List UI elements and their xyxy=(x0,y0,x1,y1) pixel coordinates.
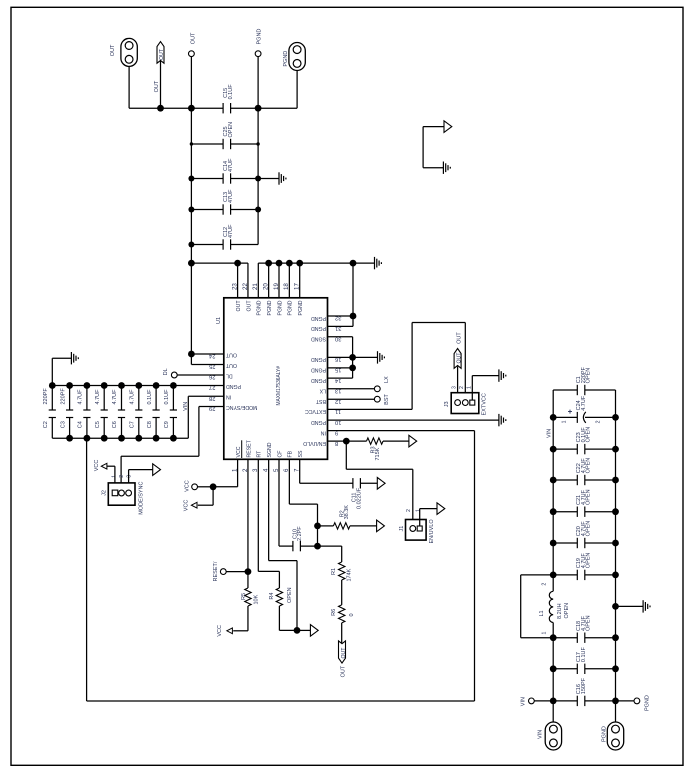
svg-text:VCC: VCC xyxy=(236,446,242,457)
svg-text:IN: IN xyxy=(226,394,231,400)
svg-text:OUT: OUT xyxy=(154,80,160,92)
svg-text:MAXM17536ALY#: MAXM17536ALY# xyxy=(276,366,282,406)
svg-text:0.1UF: 0.1UF xyxy=(147,389,153,405)
svg-text:PGND: PGND xyxy=(288,300,294,315)
svg-text:OUT: OUT xyxy=(456,352,462,364)
svg-text:R4: R4 xyxy=(269,593,275,600)
svg-text:OPEN: OPEN xyxy=(586,553,592,569)
svg-text:2: 2 xyxy=(459,386,465,389)
svg-text:OPEN: OPEN xyxy=(586,458,592,474)
svg-text:C9: C9 xyxy=(164,421,170,428)
svg-text:EXTVCC: EXTVCC xyxy=(305,408,326,414)
svg-text:174K: 174K xyxy=(347,568,353,581)
svg-text:OUT: OUT xyxy=(246,300,252,312)
svg-text:VCC: VCC xyxy=(183,500,189,512)
svg-text:J2: J2 xyxy=(101,490,107,496)
svg-text:IN: IN xyxy=(321,429,326,435)
svg-text:C5: C5 xyxy=(95,421,101,428)
svg-text:C4: C4 xyxy=(78,421,84,428)
svg-text:CF: CF xyxy=(277,451,283,458)
svg-text:47UF: 47UF xyxy=(228,224,234,238)
svg-text:21: 21 xyxy=(252,283,259,290)
svg-text:2: 2 xyxy=(119,475,125,478)
svg-text:4.7UF: 4.7UF xyxy=(78,389,84,405)
svg-text:OUT: OUT xyxy=(225,351,237,357)
svg-text:OPEN: OPEN xyxy=(228,122,234,138)
svg-text:LX: LX xyxy=(384,376,390,383)
svg-text:PGND: PGND xyxy=(645,695,651,711)
svg-text:OUT: OUT xyxy=(236,300,242,312)
svg-text:3: 3 xyxy=(452,386,458,389)
svg-text:PGND: PGND xyxy=(311,377,326,383)
svg-text:OUT: OUT xyxy=(341,647,347,659)
svg-text:BST: BST xyxy=(384,393,390,404)
svg-text:R5: R5 xyxy=(241,593,247,600)
svg-text:22: 22 xyxy=(242,283,249,290)
svg-text:OUT: OUT xyxy=(341,665,347,677)
svg-text:2: 2 xyxy=(541,583,547,586)
svg-text:C8: C8 xyxy=(147,421,153,428)
svg-text:OUT: OUT xyxy=(159,48,165,60)
svg-text:J3: J3 xyxy=(444,401,450,407)
svg-text:OUT: OUT xyxy=(225,362,237,368)
svg-text:PGND: PGND xyxy=(311,315,326,321)
svg-text:OPEN: OPEN xyxy=(586,368,592,384)
svg-text:DL: DL xyxy=(226,372,233,378)
svg-text:OPEN: OPEN xyxy=(564,603,570,619)
svg-text:OUT: OUT xyxy=(110,44,116,56)
svg-text:4.7UF: 4.7UF xyxy=(112,389,118,405)
svg-text:PGND: PGND xyxy=(602,726,608,742)
svg-text:1: 1 xyxy=(415,509,421,512)
svg-text:PGND: PGND xyxy=(298,300,304,315)
svg-text:R6: R6 xyxy=(331,609,337,616)
svg-text:PGND: PGND xyxy=(257,29,263,45)
svg-text:VIN: VIN xyxy=(538,730,544,739)
svg-text:FB: FB xyxy=(288,450,294,457)
svg-text:4.7UF: 4.7UF xyxy=(130,389,136,405)
svg-text:MODE/SYNC: MODE/SYNC xyxy=(139,481,145,514)
svg-text:RT: RT xyxy=(257,450,263,458)
svg-text:220PF: 220PF xyxy=(43,388,49,405)
svg-text:0.1UF: 0.1UF xyxy=(228,84,234,100)
svg-text:0.1UF: 0.1UF xyxy=(164,389,170,405)
svg-text:OUT: OUT xyxy=(191,32,197,44)
svg-text:VCC: VCC xyxy=(184,480,190,492)
svg-text:PGND: PGND xyxy=(311,419,326,425)
svg-text:220PF: 220PF xyxy=(60,388,66,405)
svg-text:2.2PF: 2.2PF xyxy=(297,526,303,541)
svg-text:31: 31 xyxy=(335,325,341,331)
svg-text:4.7UF: 4.7UF xyxy=(581,395,587,411)
svg-text:0: 0 xyxy=(349,613,355,616)
svg-text:10K: 10K xyxy=(253,594,259,604)
svg-text:EN/UVLO: EN/UVLO xyxy=(303,440,326,446)
svg-text:32: 32 xyxy=(335,315,341,321)
svg-text:C7: C7 xyxy=(130,421,136,428)
svg-text:C3: C3 xyxy=(60,421,66,428)
svg-text:23: 23 xyxy=(231,283,238,290)
svg-text:47UF: 47UF xyxy=(228,158,234,172)
svg-text:2: 2 xyxy=(406,509,412,512)
svg-text:EXTVCC: EXTVCC xyxy=(482,393,488,415)
svg-text:VCC: VCC xyxy=(94,460,100,472)
svg-text:J1: J1 xyxy=(399,526,405,532)
svg-text:LX: LX xyxy=(319,388,326,394)
svg-text:4.7UF: 4.7UF xyxy=(95,389,101,405)
svg-text:1: 1 xyxy=(561,420,567,423)
svg-text:19: 19 xyxy=(273,283,280,290)
svg-text:VIN: VIN xyxy=(521,697,527,706)
svg-text:3: 3 xyxy=(127,475,133,478)
svg-text:OPEN: OPEN xyxy=(586,427,592,443)
svg-text:L1: L1 xyxy=(539,610,545,616)
svg-text:EN/UVLO: EN/UVLO xyxy=(429,519,435,544)
svg-text:OPEN: OPEN xyxy=(586,615,592,631)
svg-text:OPEN: OPEN xyxy=(586,521,592,537)
svg-text:150PF: 150PF xyxy=(581,677,587,694)
svg-text:715K: 715K xyxy=(375,447,381,460)
svg-text:PGND: PGND xyxy=(283,51,289,67)
svg-text:R1: R1 xyxy=(331,568,337,575)
svg-text:OPEN: OPEN xyxy=(287,587,293,603)
svg-text:0.022UF: 0.022UF xyxy=(356,487,362,509)
svg-text:PGND: PGND xyxy=(277,300,283,315)
svg-text:PGND: PGND xyxy=(311,367,326,373)
svg-text:PGND: PGND xyxy=(311,356,326,362)
svg-text:1: 1 xyxy=(467,386,473,389)
svg-text:C2: C2 xyxy=(43,421,49,428)
svg-text:18: 18 xyxy=(283,283,290,290)
svg-text:VCC: VCC xyxy=(217,625,223,637)
svg-text:SGND: SGND xyxy=(267,442,273,457)
svg-text:PGND: PGND xyxy=(257,300,263,315)
svg-text:SS: SS xyxy=(298,450,304,457)
svg-text:1: 1 xyxy=(541,632,547,635)
svg-text:SGND: SGND xyxy=(311,336,326,342)
svg-text:U1: U1 xyxy=(216,317,222,324)
svg-text:VIN: VIN xyxy=(183,402,189,411)
svg-text:DL: DL xyxy=(163,368,169,375)
svg-text:VIN: VIN xyxy=(547,429,553,438)
svg-text:PGND: PGND xyxy=(267,300,273,315)
svg-text:MODE/SYNC: MODE/SYNC xyxy=(226,404,258,410)
svg-text:C6: C6 xyxy=(112,421,118,428)
svg-text:20: 20 xyxy=(262,283,269,290)
svg-text:8.2UH: 8.2UH xyxy=(557,603,563,619)
svg-text:RESET: RESET xyxy=(246,439,252,457)
svg-text:RESET/: RESET/ xyxy=(213,561,219,581)
svg-text:47UF: 47UF xyxy=(228,189,234,203)
svg-text:PGND: PGND xyxy=(311,325,326,331)
svg-text:2: 2 xyxy=(595,420,601,423)
svg-text:OUT: OUT xyxy=(456,332,462,344)
svg-text:OPEN: OPEN xyxy=(586,489,592,505)
svg-text:38.3K: 38.3K xyxy=(344,505,350,520)
svg-text:BST: BST xyxy=(315,398,326,404)
svg-text:17: 17 xyxy=(294,283,301,290)
svg-text:0.1UF: 0.1UF xyxy=(581,646,587,662)
svg-text:PGND: PGND xyxy=(226,383,241,389)
